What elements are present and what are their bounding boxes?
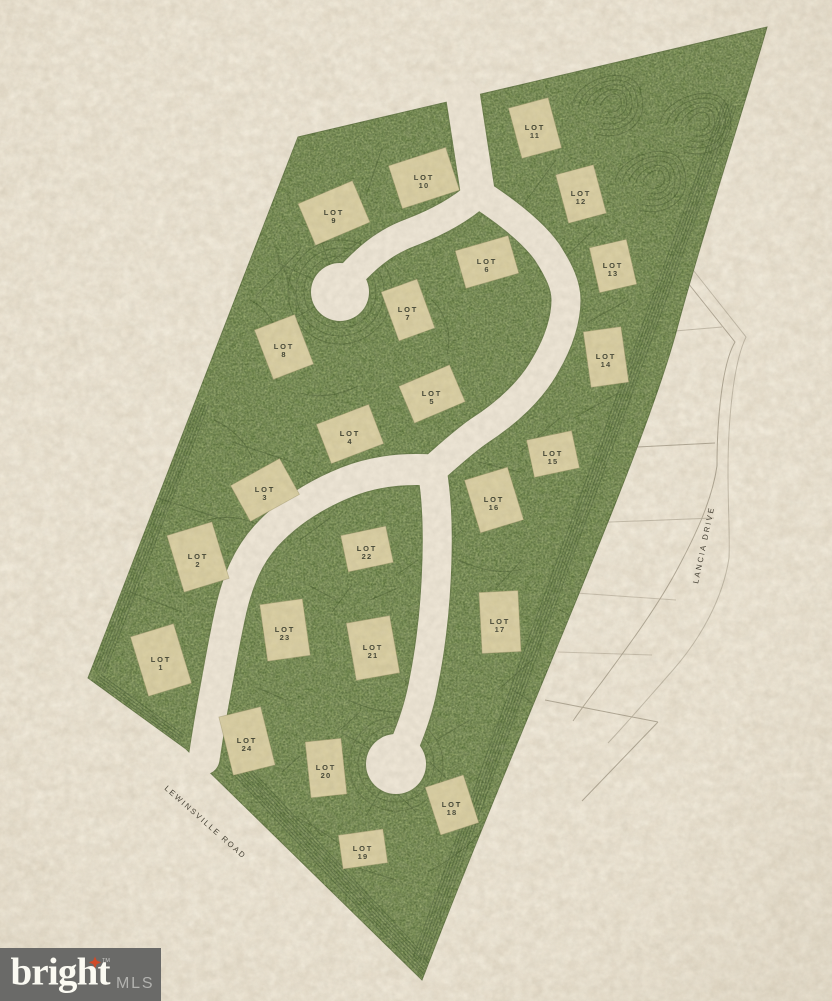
svg-text:TM: TM: [102, 958, 110, 964]
svg-text:MLS: MLS: [116, 975, 154, 992]
svg-text:bright: bright: [11, 951, 111, 994]
